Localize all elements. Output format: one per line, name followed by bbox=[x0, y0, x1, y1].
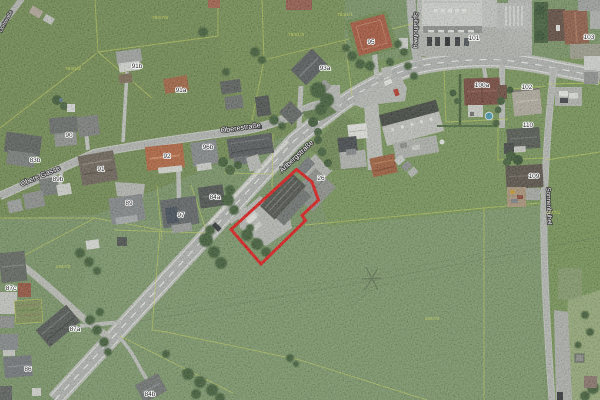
svg-text:96b: 96b bbox=[203, 144, 214, 151]
svg-text:784/7/8: 784/7/8 bbox=[152, 15, 168, 21]
svg-text:102: 102 bbox=[522, 84, 533, 91]
svg-text:92: 92 bbox=[163, 153, 171, 160]
svg-text:95: 95 bbox=[367, 39, 375, 46]
svg-text:89b: 89b bbox=[53, 176, 64, 183]
svg-text:87c: 87c bbox=[6, 285, 17, 292]
svg-text:89: 89 bbox=[125, 200, 133, 207]
svg-text:97: 97 bbox=[177, 212, 185, 219]
svg-text:84b: 84b bbox=[145, 391, 156, 398]
svg-text:1947/4: 1947/4 bbox=[425, 316, 440, 322]
svg-text:93a: 93a bbox=[320, 65, 331, 72]
svg-text:109: 109 bbox=[529, 173, 540, 180]
svg-text:87a: 87a bbox=[70, 326, 81, 333]
svg-text:1947/2: 1947/2 bbox=[56, 264, 71, 270]
svg-text:784/1/1: 784/1/1 bbox=[337, 12, 353, 18]
svg-text:Spitalhofweg: Spitalhofweg bbox=[412, 12, 419, 49]
svg-text:1947/1: 1947/1 bbox=[546, 210, 561, 216]
svg-text:100a: 100a bbox=[475, 82, 490, 89]
svg-text:90: 90 bbox=[65, 132, 73, 139]
svg-text:101: 101 bbox=[469, 35, 480, 42]
svg-text:784/1/3: 784/1/3 bbox=[288, 32, 304, 38]
svg-text:86: 86 bbox=[24, 366, 32, 373]
svg-text:26: 26 bbox=[317, 175, 325, 182]
svg-text:103: 103 bbox=[584, 34, 595, 41]
svg-text:Sonnenbühel: Sonnenbühel bbox=[544, 187, 552, 224]
svg-text:91: 91 bbox=[97, 166, 105, 173]
svg-text:110: 110 bbox=[523, 122, 534, 129]
svg-text:784/1/2: 784/1/2 bbox=[65, 66, 81, 72]
svg-text:84a: 84a bbox=[210, 194, 221, 201]
svg-text:91b: 91b bbox=[132, 63, 143, 70]
svg-text:91a: 91a bbox=[176, 87, 187, 94]
svg-text:83b: 83b bbox=[30, 157, 41, 164]
